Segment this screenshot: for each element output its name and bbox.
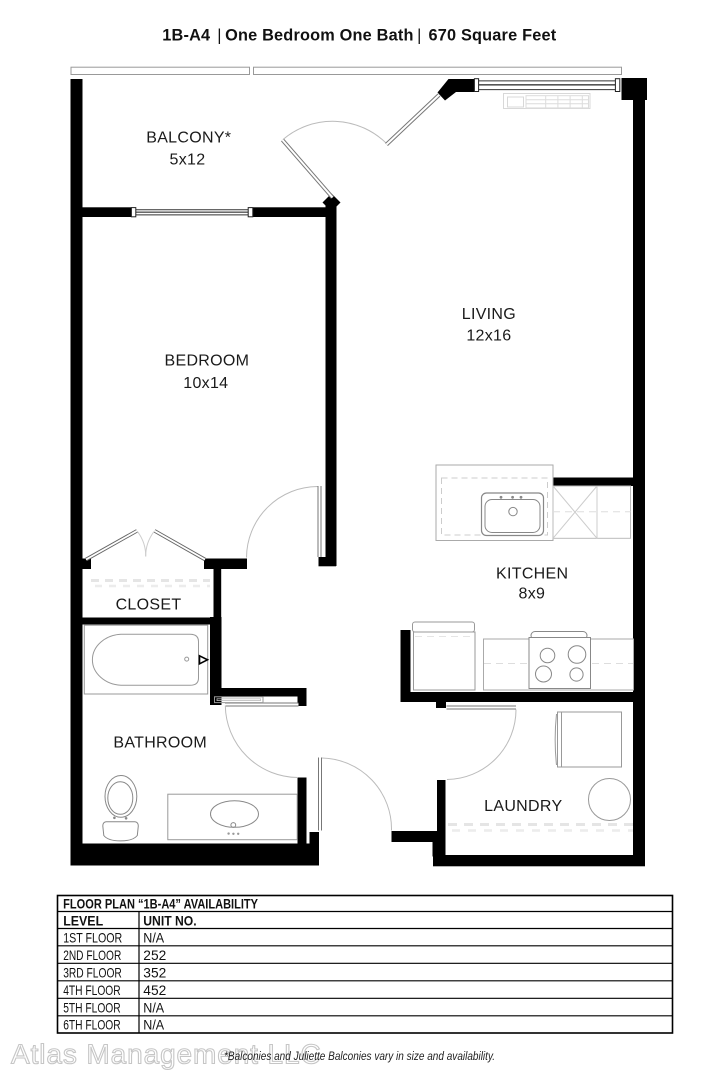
svg-text:CLOSET: CLOSET <box>116 597 182 614</box>
svg-text:N/A: N/A <box>143 1017 164 1033</box>
svg-text:3RD FLOOR: 3RD FLOOR <box>63 965 122 981</box>
svg-text:FLOOR PLAN “1B-A4” AVAILABILIT: FLOOR PLAN “1B-A4” AVAILABILITY <box>63 896 259 911</box>
svg-text:LEVEL: LEVEL <box>63 913 103 929</box>
svg-text:10x14: 10x14 <box>183 375 228 392</box>
svg-text:5TH FLOOR: 5TH FLOOR <box>63 1000 121 1016</box>
svg-text:4TH FLOOR: 4TH FLOOR <box>63 983 121 999</box>
svg-text:LAUNDRY: LAUNDRY <box>484 798 562 815</box>
svg-text:BALCONY*: BALCONY* <box>146 130 231 147</box>
svg-text:KITCHEN: KITCHEN <box>496 566 568 583</box>
svg-text:UNIT NO.: UNIT NO. <box>143 913 196 929</box>
svg-text:BATHROOM: BATHROOM <box>113 735 207 752</box>
svg-text:N/A: N/A <box>143 930 164 946</box>
svg-text:1B-A4 | One Bedroom One Bath: 1B-A4 | One Bedroom One Bath | 670 Squar… <box>162 26 556 44</box>
svg-text:2ND FLOOR: 2ND FLOOR <box>63 947 121 963</box>
svg-text:N/A: N/A <box>143 1000 164 1016</box>
svg-text:452: 452 <box>143 983 166 998</box>
svg-text:352: 352 <box>143 966 166 981</box>
svg-text:1ST FLOOR: 1ST FLOOR <box>63 930 122 946</box>
svg-text:LIVING: LIVING <box>462 306 516 323</box>
svg-text:*Balconies and Juliette Balcon: *Balconies and Juliette Balconies vary i… <box>224 1051 495 1063</box>
svg-text:12x16: 12x16 <box>466 328 511 345</box>
svg-text:252: 252 <box>143 948 166 963</box>
svg-text:8x9: 8x9 <box>519 586 546 603</box>
svg-text:5x12: 5x12 <box>170 152 206 169</box>
svg-text:6TH FLOOR: 6TH FLOOR <box>63 1017 121 1033</box>
svg-text:BEDROOM: BEDROOM <box>165 353 250 370</box>
